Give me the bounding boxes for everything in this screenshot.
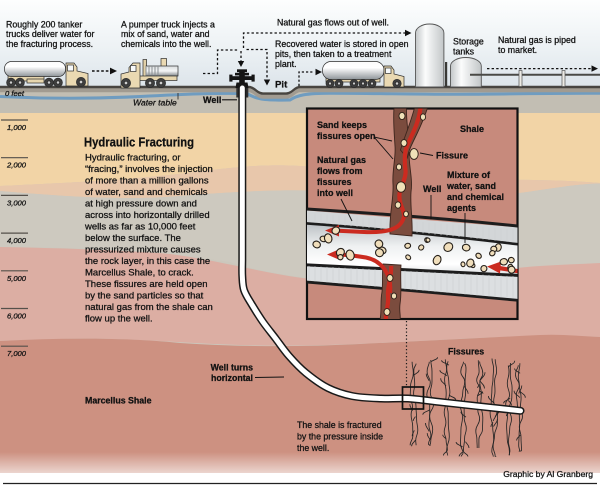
svg-text:water, sand: water, sand [446,181,496,191]
svg-text:wells as far as 10,000 feet: wells as far as 10,000 feet [84,222,196,233]
svg-text:Well turns: Well turns [211,363,253,373]
svg-text:the rock layer, in this case t: the rock layer, in this case the [85,256,210,267]
svg-text:into well: into well [317,188,353,198]
svg-text:0 feet: 0 feet [5,89,25,98]
svg-text:The shale is fractured: The shale is fractured [297,420,382,430]
svg-text:Storage: Storage [453,37,484,47]
svg-text:to market.: to market. [498,45,537,55]
svg-text:of water, sand and chemicals: of water, sand and chemicals [85,187,208,198]
svg-text:4,000: 4,000 [7,236,27,245]
svg-text:Natural gas: Natural gas [317,155,366,165]
svg-text:flows from: flows from [317,166,363,176]
svg-text:of more than a million gallons: of more than a million gallons [85,176,209,187]
svg-text:A pumper truck injects a: A pumper truck injects a [121,19,215,29]
svg-text:the well.: the well. [297,443,329,453]
svg-text:pits, then taken to a treatmen: pits, then taken to a treatment [275,49,392,59]
svg-text:Recovered water is stored in o: Recovered water is stored in open [275,39,409,49]
svg-text:by the sand particles so that: by the sand particles so that [85,291,204,302]
svg-text:fissures: fissures [317,177,352,187]
svg-text:Well: Well [203,95,221,105]
svg-text:Well: Well [423,184,441,194]
svg-text:2,000: 2,000 [6,161,27,170]
svg-text:Fissure: Fissure [436,151,468,161]
svg-text:horizontal: horizontal [211,373,253,383]
svg-text:1,000: 1,000 [7,123,27,132]
svg-text:Marcellus Shale, to crack.: Marcellus Shale, to crack. [85,268,194,279]
svg-text:5,000: 5,000 [7,274,27,283]
svg-text:tanks: tanks [453,46,475,56]
svg-text:and chemical: and chemical [447,192,504,202]
svg-text:Water table: Water table [133,98,177,108]
svg-text:Sand keeps: Sand keeps [317,120,367,130]
svg-text:by the pressure inside: by the pressure inside [297,432,383,442]
svg-text:Fissures: Fissures [448,347,484,357]
svg-text:at high pressure down and: at high pressure down and [85,199,197,210]
svg-text:Hydraulic fracturing, or: Hydraulic fracturing, or [85,153,181,164]
svg-text:pressurized mixture causes: pressurized mixture causes [85,245,201,256]
svg-text:trucks deliver water for: trucks deliver water for [6,29,95,39]
svg-text:below the surface. The: below the surface. The [85,233,181,244]
svg-text:These fissures are held open: These fissures are held open [85,279,208,290]
svg-text:Roughly 200 tanker: Roughly 200 tanker [6,19,82,29]
svg-text:7,000: 7,000 [7,349,27,358]
svg-text:plant.: plant. [275,59,297,69]
svg-text:Shale: Shale [460,124,484,134]
svg-text:flow up the well.: flow up the well. [85,314,153,325]
svg-text:6,000: 6,000 [7,312,27,321]
svg-text:Graphic by Al Granberg: Graphic by Al Granberg [503,469,593,479]
svg-text:natural gas from the shale can: natural gas from the shale can [85,302,213,313]
svg-text:the fracturing process.: the fracturing process. [6,39,93,49]
svg-text:3,000: 3,000 [7,198,27,207]
svg-text:Mixture of: Mixture of [447,170,491,180]
svg-text:fissures open: fissures open [317,131,376,141]
svg-text:across into horizontally drill: across into horizontally drilled [85,210,210,221]
svg-text:Marcellus Shale: Marcellus Shale [85,396,152,406]
svg-text:agents: agents [447,203,476,213]
svg-text:Natural gas flows out of well.: Natural gas flows out of well. [277,18,389,28]
svg-text:“fracing,” involves the inject: “fracing,” involves the injection [85,164,213,175]
svg-text:Hydraulic Fracturing: Hydraulic Fracturing [84,135,194,150]
svg-text:mix of sand, water and: mix of sand, water and [121,29,210,39]
svg-text:chemicals into the well.: chemicals into the well. [121,39,211,49]
svg-text:Natural gas is piped: Natural gas is piped [498,35,576,45]
svg-text:Pit: Pit [275,80,288,91]
